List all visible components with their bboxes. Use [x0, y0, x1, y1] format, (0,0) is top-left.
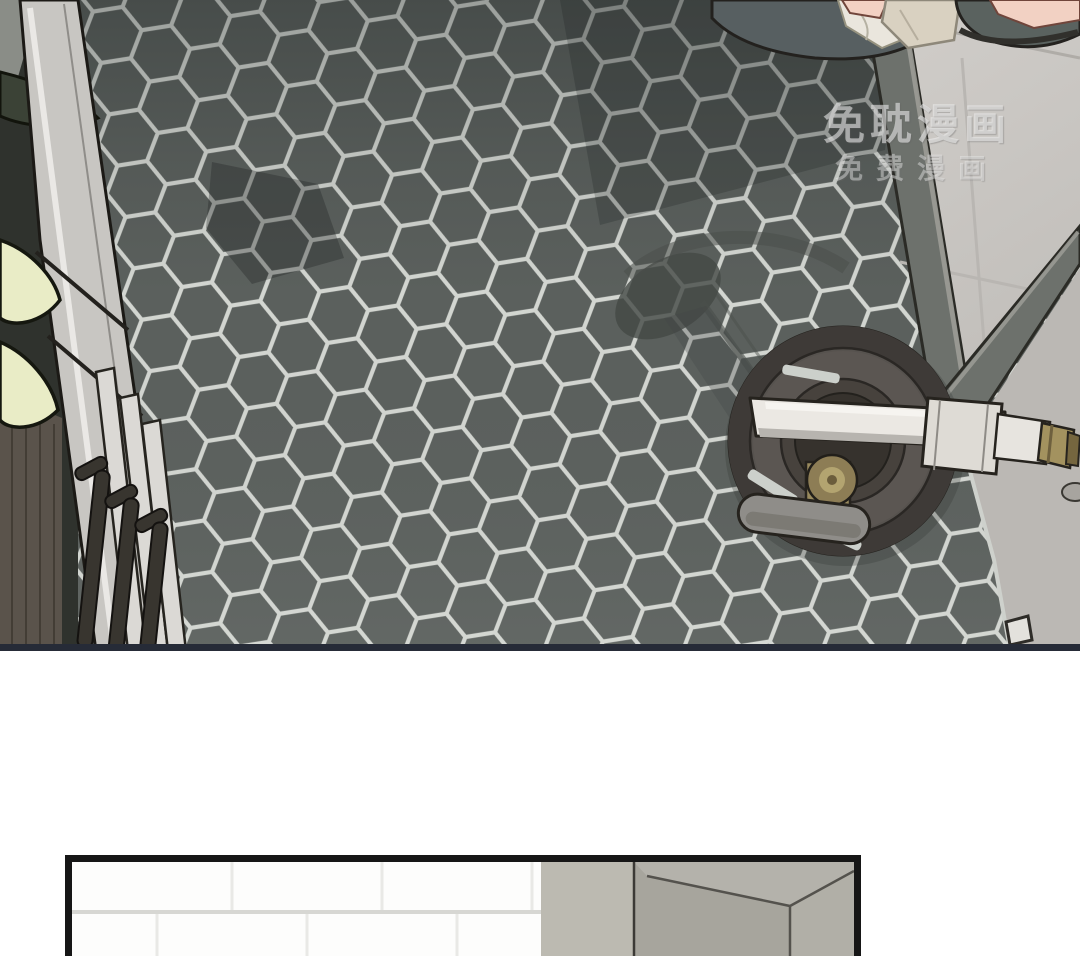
panel-tile-wall	[65, 855, 861, 956]
panel1-border	[0, 644, 1080, 651]
gray-wall-strip	[541, 862, 634, 956]
bathroom-scene	[0, 0, 1080, 651]
panel-bathroom-floor: 免耽漫画 免费漫画	[0, 0, 1080, 651]
small-tile-piece	[1006, 616, 1032, 645]
brass-tip-cap	[1066, 432, 1080, 466]
brass-valve-core	[827, 475, 837, 485]
wood-face	[0, 392, 62, 651]
pipe-end-piece	[1062, 483, 1080, 501]
comic-page: 免耽漫画 免费漫画	[0, 0, 1080, 956]
gray-column-box	[634, 862, 854, 956]
tile-wall-scene	[72, 862, 854, 956]
